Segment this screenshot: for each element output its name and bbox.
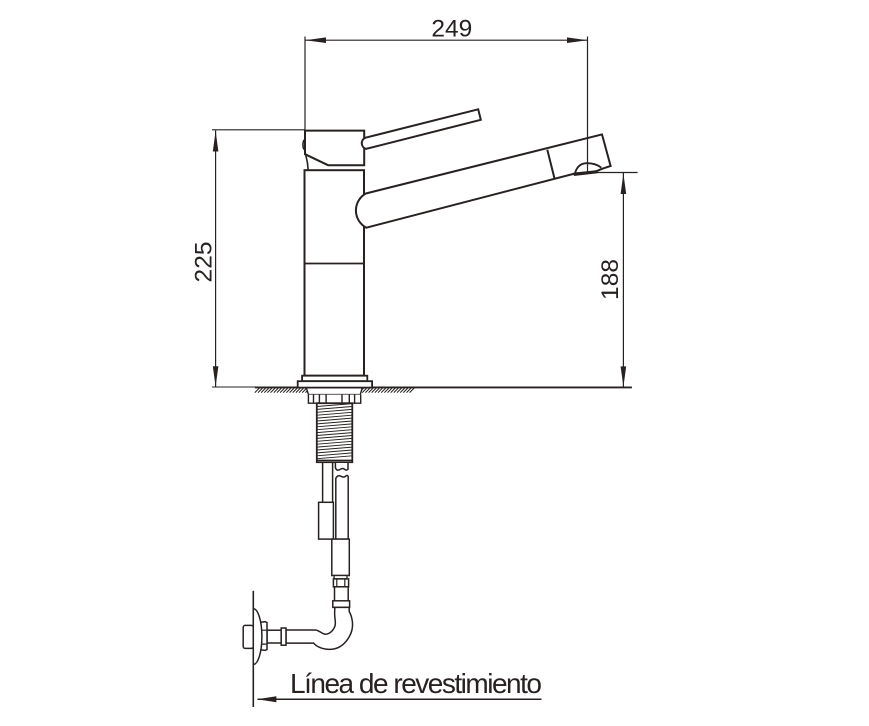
- svg-text:Línea de revestimiento: Línea de revestimiento: [290, 668, 542, 699]
- svg-text:188: 188: [597, 259, 624, 300]
- svg-text:249: 249: [431, 15, 472, 42]
- svg-text:225: 225: [191, 242, 218, 283]
